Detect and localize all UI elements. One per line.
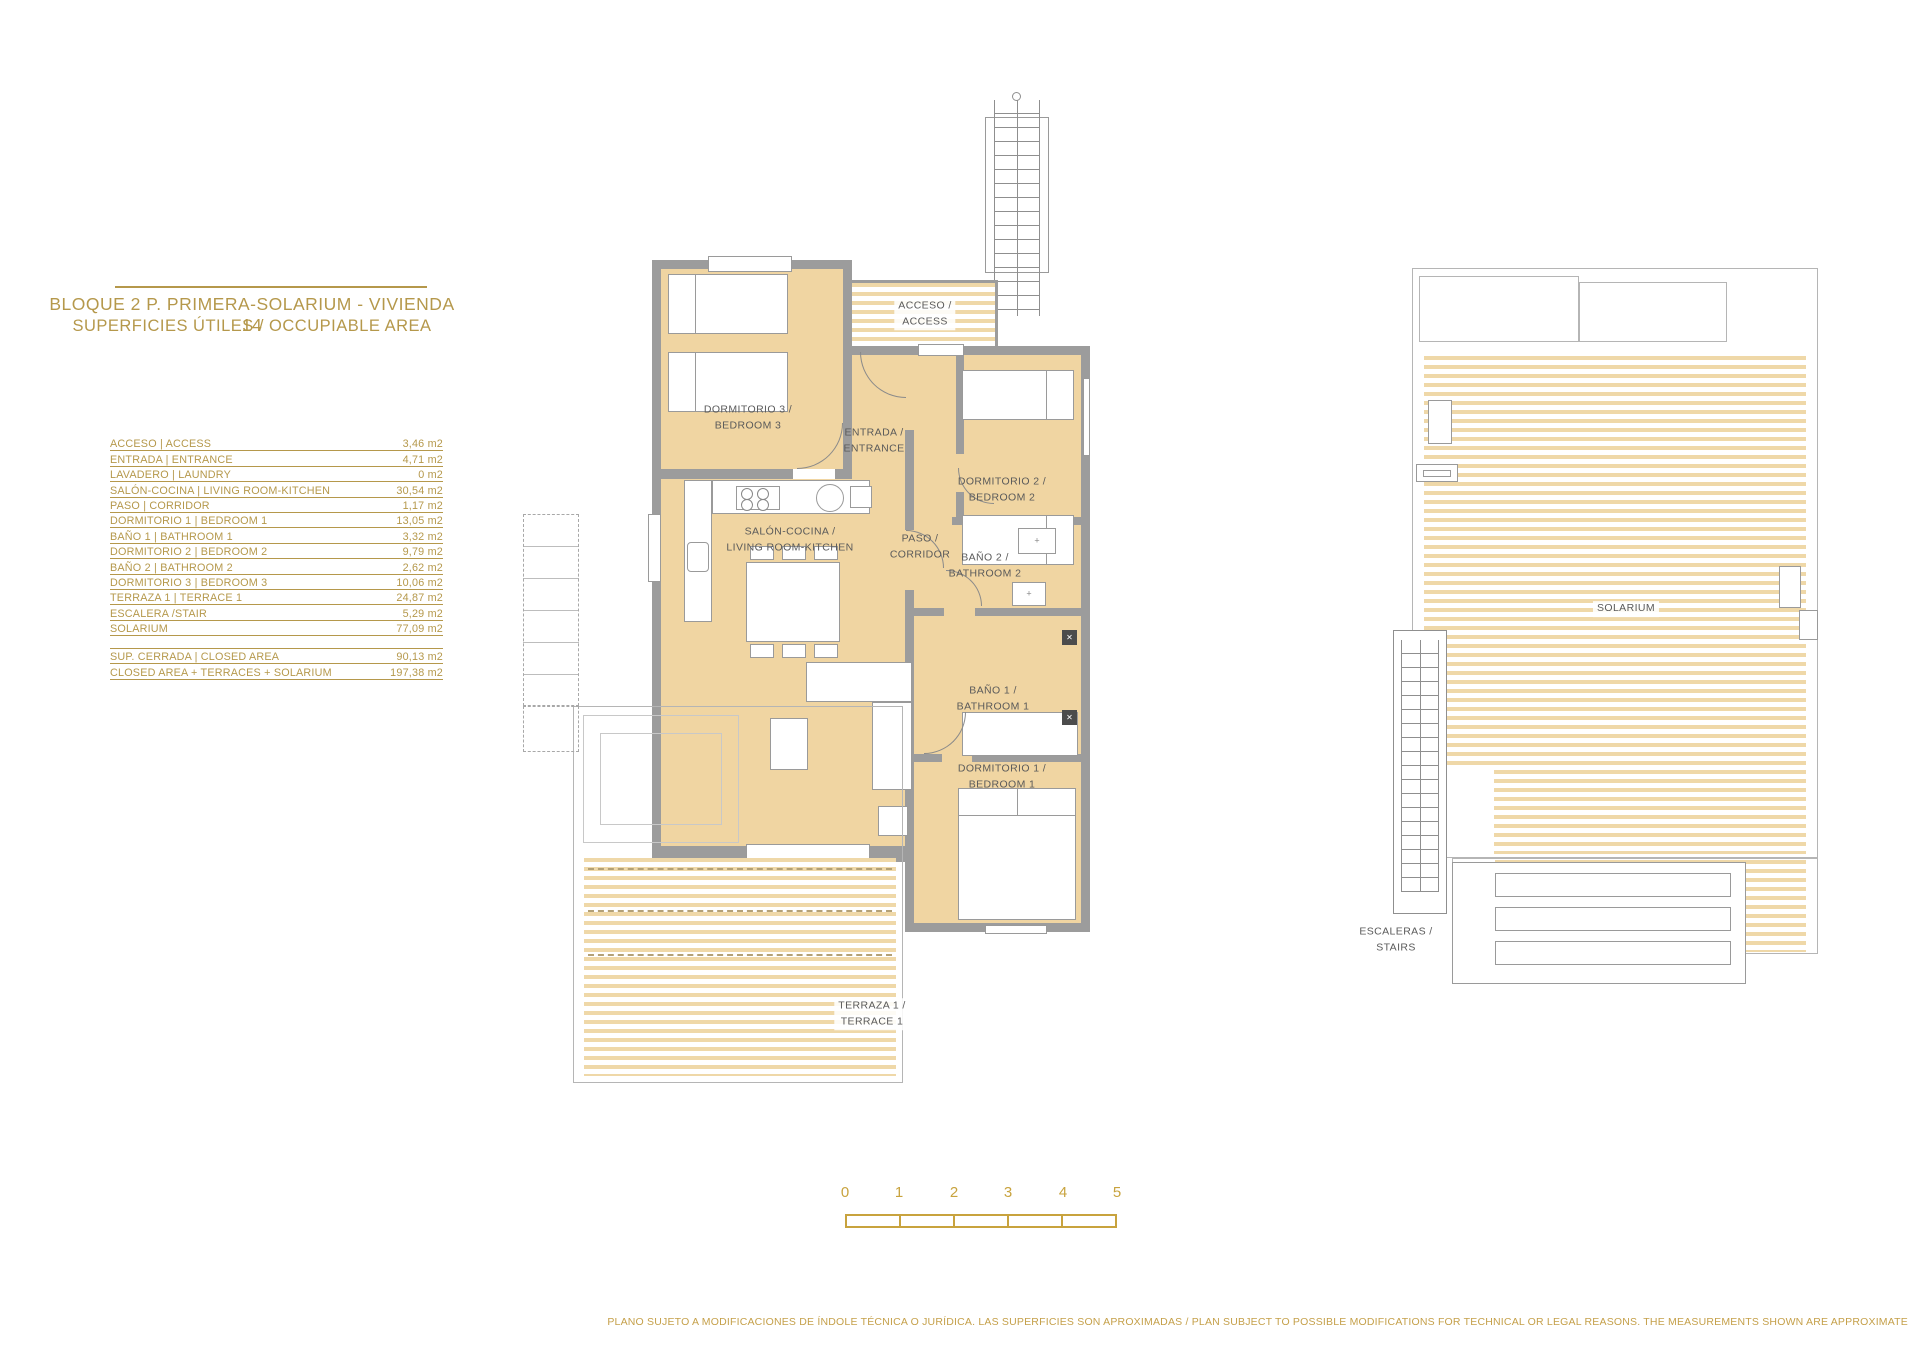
- room-label-access: ACCESO / ACCESS: [894, 298, 955, 330]
- area-value: 3,46 m2: [403, 438, 443, 450]
- solarium-top-room: [1579, 282, 1727, 342]
- window: [708, 256, 792, 272]
- area-value: 3,32 m2: [403, 531, 443, 543]
- area-label: ENTRADA | ENTRANCE: [110, 454, 233, 466]
- step: [1495, 941, 1731, 965]
- area-label: BAÑO 2 | BATHROOM 2: [110, 562, 233, 574]
- stair-below-dashed: [523, 514, 579, 706]
- area-value: 5,29 m2: [403, 608, 443, 620]
- stair-landing-dashed: [523, 706, 579, 752]
- table-row: ACCESO | ACCESS3,46 m2: [110, 436, 443, 451]
- scale-segment: [955, 1216, 1009, 1226]
- wall: [914, 608, 944, 616]
- table-row: PASO | CORRIDOR1,17 m2: [110, 498, 443, 513]
- room-label-bedroom2: DORMITORIO 2 / BEDROOM 2: [958, 474, 1046, 506]
- step: [1495, 873, 1731, 897]
- table-row: SUP. CERRADA | CLOSED AREA90,13 m2: [110, 649, 443, 664]
- table-row: TERRAZA 1 | TERRACE 124,87 m2: [110, 590, 443, 605]
- area-value: 13,05 m2: [396, 515, 443, 527]
- room-label-living: SALÓN-COCINA / LIVING ROOM-KITCHEN: [726, 524, 853, 556]
- wall: [995, 280, 998, 346]
- chair: [814, 644, 838, 658]
- room-label-solarium: SOLARIUM: [1593, 601, 1659, 617]
- area-label: LAVADERO | LAUNDRY: [110, 469, 231, 481]
- room-label-terrace: TERRAZA 1 / TERRACE 1: [834, 998, 909, 1030]
- planter-inner: [1423, 470, 1451, 477]
- room-label-stairs: ESCALERAS / STAIRS: [1359, 924, 1432, 956]
- hob-icon: [736, 486, 780, 510]
- stair-start-circle-icon: [1012, 92, 1021, 101]
- scale-tick-label: 3: [1004, 1184, 1012, 1201]
- table-row: SOLARIUM77,09 m2: [110, 621, 443, 636]
- toilet-icon: [1012, 582, 1046, 606]
- table-row: BAÑO 2 | BATHROOM 22,62 m2: [110, 559, 443, 574]
- access-stair-icon: [994, 100, 1040, 316]
- bathtub-icon: [962, 712, 1078, 756]
- bed: [962, 370, 1074, 420]
- area-value: 197,38 m2: [390, 667, 443, 679]
- scale-segment: [1063, 1216, 1115, 1226]
- area-label: PASO | CORRIDOR: [110, 500, 210, 512]
- table-row: SALÓN-COCINA | LIVING ROOM-KITCHEN30,54 …: [110, 482, 443, 497]
- table-row: ESCALERA /STAIR5,29 m2: [110, 605, 443, 620]
- area-value: 10,06 m2: [396, 577, 443, 589]
- area-label: SUP. CERRADA | CLOSED AREA: [110, 651, 279, 663]
- terrace-outline: [600, 733, 722, 825]
- wall: [905, 430, 914, 530]
- room-label-entrance: ENTRADA / ENTRANCE: [844, 425, 905, 457]
- area-label: DORMITORIO 1 | BEDROOM 1: [110, 515, 267, 527]
- lounger: [1779, 566, 1801, 608]
- scale-tick-label: 5: [1113, 1184, 1121, 1201]
- burner-icon: [757, 499, 769, 511]
- burner-icon: [741, 499, 753, 511]
- area-value: 4,71 m2: [403, 454, 443, 466]
- planter: [1799, 610, 1818, 640]
- area-label: SOLARIUM: [110, 623, 168, 635]
- wall: [852, 280, 998, 283]
- area-value: 77,09 m2: [396, 623, 443, 635]
- table-row: DORMITORIO 1 | BEDROOM 113,05 m2: [110, 513, 443, 528]
- floor-plan-sheet: { "document": { "title_line1": "BLOQUE 2…: [0, 0, 1920, 1357]
- window: [918, 344, 964, 356]
- window: [1083, 378, 1090, 456]
- wall: [975, 608, 1081, 616]
- table-row: DORMITORIO 2 | BEDROOM 29,79 m2: [110, 544, 443, 559]
- dining-table: [746, 562, 840, 642]
- area-label: ESCALERA /STAIR: [110, 608, 207, 620]
- area-value: 24,87 m2: [396, 592, 443, 604]
- scale-segment: [901, 1216, 955, 1226]
- scale-bar: [845, 1214, 1117, 1228]
- area-label: DORMITORIO 2 | BEDROOM 2: [110, 546, 267, 558]
- washer-icon: [816, 484, 844, 512]
- table-row: ENTRADA | ENTRANCE4,71 m2: [110, 451, 443, 466]
- pergola-dashed-line: [588, 954, 892, 956]
- appliance: [850, 486, 872, 508]
- table-row: DORMITORIO 3 | BEDROOM 310,06 m2: [110, 575, 443, 590]
- area-label: ACCESO | ACCESS: [110, 438, 211, 450]
- chair: [782, 644, 806, 658]
- window: [985, 925, 1047, 934]
- scale-tick-label: 2: [950, 1184, 958, 1201]
- room-label-bedroom1: DORMITORIO 1 / BEDROOM 1: [958, 761, 1046, 793]
- areas-table: ACCESO | ACCESS3,46 m2 ENTRADA | ENTRANC…: [110, 436, 443, 680]
- area-label: SALÓN-COCINA | LIVING ROOM-KITCHEN: [110, 485, 330, 497]
- lounger: [1428, 400, 1452, 444]
- area-label: BAÑO 1 | BATHROOM 1: [110, 531, 233, 543]
- scale-segment: [847, 1216, 901, 1226]
- wall: [835, 469, 852, 479]
- table-row: BAÑO 1 | BATHROOM 13,32 m2: [110, 528, 443, 543]
- chair: [750, 644, 774, 658]
- scale-tick-label: 4: [1059, 1184, 1067, 1201]
- area-value: 1,17 m2: [403, 500, 443, 512]
- planter: [1416, 464, 1458, 482]
- area-value: 90,13 m2: [396, 651, 443, 663]
- title-rule: [115, 286, 427, 288]
- areas-summary: SUP. CERRADA | CLOSED AREA90,13 m2 CLOSE…: [110, 648, 443, 680]
- page-subtitle: SUPERFICIES ÚTILES / OCCUPIABLE AREA: [40, 317, 464, 336]
- room-label-bathroom2: BAÑO 2 / BATHROOM 2: [949, 550, 1022, 582]
- scale-segment: [1009, 1216, 1063, 1226]
- solarium-steps: [1452, 862, 1746, 984]
- wall: [652, 469, 793, 479]
- pergola-dashed-line: [588, 868, 892, 870]
- double-bed: [958, 788, 1076, 920]
- floor-opening: [905, 349, 914, 430]
- area-label: TERRAZA 1 | TERRACE 1: [110, 592, 242, 604]
- bed: [668, 274, 788, 334]
- ac-unit-icon: ✕: [1062, 630, 1077, 645]
- table-row: CLOSED AREA + TERRACES + SOLARIUM197,38 …: [110, 664, 443, 679]
- pergola-dashed-line: [588, 910, 892, 912]
- scale-tick-label: 0: [841, 1184, 849, 1201]
- room-label-bathroom1: BAÑO 1 / BATHROOM 1: [957, 683, 1030, 715]
- area-value: 9,79 m2: [403, 546, 443, 558]
- scale-tick-label: 1: [895, 1184, 903, 1201]
- area-label: DORMITORIO 3 | BEDROOM 3: [110, 577, 267, 589]
- washbasin-icon: [1018, 528, 1056, 554]
- room-label-corridor: PASO / CORRIDOR: [890, 531, 950, 563]
- window: [648, 514, 661, 582]
- room-label-bedroom3: DORMITORIO 3 / BEDROOM 3: [704, 402, 792, 434]
- area-value: 0 m2: [418, 469, 443, 481]
- sofa: [806, 662, 912, 702]
- area-value: 2,62 m2: [403, 562, 443, 574]
- solarium-top-room: [1419, 276, 1579, 342]
- area-value: 30,54 m2: [396, 485, 443, 497]
- sink-icon: [687, 542, 709, 572]
- table-row: LAVADERO | LAUNDRY0 m2: [110, 467, 443, 482]
- disclaimer-text: PLANO SUJETO A MODIFICACIONES DE ÍNDOLE …: [607, 1316, 1908, 1328]
- step: [1495, 907, 1731, 931]
- ac-unit-icon: ✕: [1062, 710, 1077, 725]
- solarium-stairs-icon: [1401, 640, 1439, 892]
- area-label: CLOSED AREA + TERRACES + SOLARIUM: [110, 667, 332, 679]
- wall: [914, 754, 942, 762]
- terrace-deck: [584, 858, 896, 1076]
